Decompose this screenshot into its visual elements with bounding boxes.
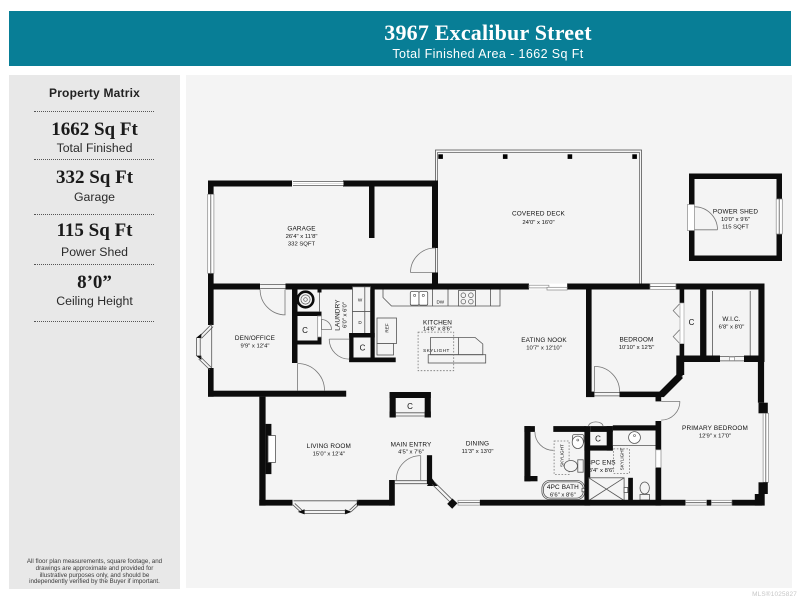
svg-text:C: C bbox=[302, 326, 308, 335]
svg-text:10'10" x 12'5": 10'10" x 12'5" bbox=[619, 345, 655, 351]
svg-text:24'0" x 16'0": 24'0" x 16'0" bbox=[522, 220, 554, 226]
svg-text:C: C bbox=[407, 402, 413, 411]
svg-text:LAUNDRY: LAUNDRY bbox=[335, 299, 342, 331]
svg-text:GARAGE: GARAGE bbox=[287, 226, 315, 233]
svg-text:15'0" x 12'4": 15'0" x 12'4" bbox=[313, 452, 345, 458]
svg-text:C: C bbox=[360, 344, 366, 353]
svg-text:BEDROOM: BEDROOM bbox=[619, 337, 653, 344]
svg-text:DINING: DINING bbox=[466, 441, 489, 448]
svg-text:KITCHEN: KITCHEN bbox=[423, 320, 452, 327]
svg-text:115 SQFT: 115 SQFT bbox=[722, 225, 749, 231]
svg-text:LIVING ROOM: LIVING ROOM bbox=[307, 443, 351, 450]
svg-text:9'9" x 12'4": 9'9" x 12'4" bbox=[240, 344, 269, 350]
svg-text:SKYLIGHT: SKYLIGHT bbox=[620, 447, 625, 470]
svg-text:10'0" x 9'6": 10'0" x 9'6" bbox=[721, 217, 750, 223]
svg-text:C: C bbox=[595, 435, 601, 444]
svg-text:6'8" x 8'0": 6'8" x 8'0" bbox=[719, 325, 745, 331]
svg-text:4'5" x 7'6": 4'5" x 7'6" bbox=[398, 450, 424, 456]
svg-text:SKYLIGHT: SKYLIGHT bbox=[560, 444, 565, 467]
svg-text:6'6" x 8'6": 6'6" x 8'6" bbox=[550, 492, 576, 498]
svg-text:W.I.C.: W.I.C. bbox=[722, 316, 740, 323]
svg-text:11'3" x 13'0": 11'3" x 13'0" bbox=[462, 449, 494, 455]
svg-text:DEN/OFFICE: DEN/OFFICE bbox=[235, 335, 275, 342]
svg-text:COVERED DECK: COVERED DECK bbox=[512, 211, 566, 218]
svg-text:EATING NOOK: EATING NOOK bbox=[521, 337, 567, 344]
svg-text:SKYLIGHT: SKYLIGHT bbox=[423, 348, 450, 353]
svg-text:3PC ENS: 3PC ENS bbox=[587, 460, 615, 467]
svg-text:10'7" x 12'10": 10'7" x 12'10" bbox=[526, 346, 562, 352]
svg-text:PRIMARY BEDROOM: PRIMARY BEDROOM bbox=[682, 425, 748, 432]
svg-text:MAIN ENTRY: MAIN ENTRY bbox=[391, 442, 432, 449]
svg-text:POWER SHED: POWER SHED bbox=[713, 209, 758, 216]
svg-text:C: C bbox=[689, 318, 695, 327]
svg-text:8'4" x 8'6": 8'4" x 8'6" bbox=[589, 468, 615, 474]
svg-text:332 SQFT: 332 SQFT bbox=[288, 242, 316, 248]
svg-text:14'6" x 8'6": 14'6" x 8'6" bbox=[423, 327, 452, 333]
svg-text:12'9" x 17'0": 12'9" x 17'0" bbox=[699, 434, 731, 440]
svg-text:REF: REF bbox=[385, 323, 390, 332]
svg-text:26'4" x 11'8": 26'4" x 11'8" bbox=[286, 234, 318, 240]
svg-text:W: W bbox=[358, 298, 363, 303]
svg-text:6'0" x 6'0": 6'0" x 6'0" bbox=[343, 302, 349, 328]
svg-text:4PC BATH: 4PC BATH bbox=[547, 484, 579, 491]
svg-text:DW: DW bbox=[436, 299, 444, 304]
